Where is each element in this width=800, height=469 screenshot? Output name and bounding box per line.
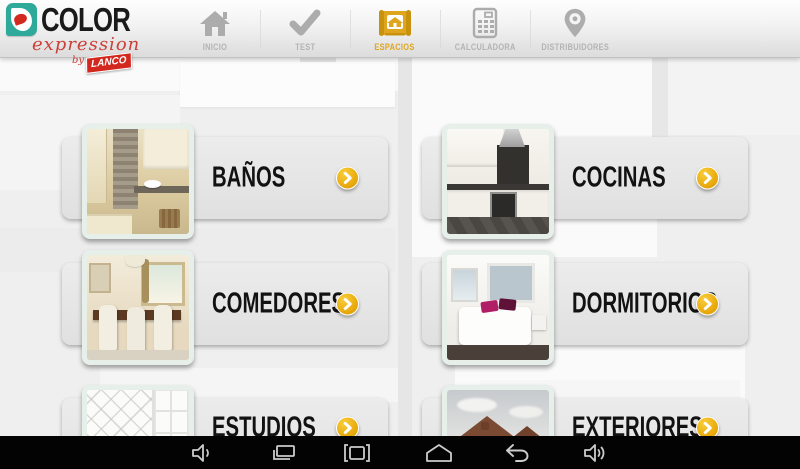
chevron-right-icon[interactable] (696, 293, 719, 316)
chair (154, 305, 172, 350)
checkmark-icon (289, 7, 321, 39)
tub-edge (87, 214, 132, 234)
volume-up-icon[interactable] (576, 436, 616, 469)
drapes (142, 259, 149, 303)
nav-label: TEST (295, 42, 315, 52)
attic-vent (481, 422, 489, 430)
brand-tagline: expression (32, 34, 140, 55)
color-expression-logo-icon (6, 3, 37, 36)
volume-down-icon[interactable] (183, 436, 223, 469)
brand-name: COLOR (41, 3, 130, 36)
tile-dormitorios[interactable]: DORMITORIOS (422, 263, 748, 345)
brand-by: by (72, 55, 84, 66)
map-pin-icon (561, 7, 589, 39)
tile-title: COCINAS (572, 162, 666, 195)
shower-glass (87, 129, 107, 203)
carpet-floor (447, 345, 549, 360)
app-logo: COLOR expression by LANCO (6, 3, 156, 36)
bedroom-photo (442, 250, 554, 365)
nav-item-calculadora[interactable]: CALCULADORA (440, 0, 530, 57)
chevron-right-icon[interactable] (696, 167, 719, 190)
tile-floor (447, 217, 549, 234)
nav-item-test[interactable]: TEST (260, 0, 350, 57)
home-icon (199, 7, 231, 39)
cloud (457, 398, 497, 412)
tile-title: COMEDORES (212, 288, 345, 321)
cloud (509, 406, 543, 418)
counter (134, 186, 189, 193)
pillow-dark (498, 298, 516, 311)
nav-item-espacios[interactable]: ESPACIOS (350, 0, 440, 57)
tile-title: BAÑOS (212, 162, 285, 195)
recent-apps-icon[interactable] (263, 436, 303, 469)
pillow-magenta (480, 300, 498, 313)
dining-room-photo (82, 250, 194, 365)
nightstand (532, 315, 546, 330)
android-system-bar (0, 436, 800, 469)
app-screen: { "branding": { "name": "COLOR", "taglin… (0, 0, 800, 469)
nav-label: CALCULADORA (454, 42, 515, 52)
mirror-cabinet (143, 129, 189, 169)
chair (127, 307, 145, 354)
high-window (487, 263, 535, 303)
tile-cocinas[interactable]: COCINAS (422, 137, 748, 219)
tile-banos[interactable]: BAÑOS (62, 137, 388, 219)
oven (490, 192, 517, 219)
blueprint-house-icon (377, 7, 413, 39)
chevron-right-icon[interactable] (336, 293, 359, 316)
kitchen-photo (442, 124, 554, 239)
nav-item-distribuidores[interactable]: DISTRIBUIDORES (530, 0, 620, 57)
window (451, 268, 478, 302)
mosaic-wall (113, 129, 138, 209)
bathroom-photo (82, 124, 194, 239)
back-icon[interactable] (497, 436, 537, 469)
bed (459, 307, 531, 345)
backsplash (497, 145, 529, 187)
lanco-logo: LANCO (86, 52, 132, 74)
nav-label: ESPACIOS (375, 42, 415, 52)
chandelier (125, 255, 145, 267)
nav-item-inicio[interactable]: INICIO (170, 0, 260, 57)
top-navigation: INICIO TEST (170, 0, 620, 57)
screenshot-icon[interactable] (337, 436, 377, 469)
wicker-basket (159, 209, 180, 228)
home-icon[interactable] (419, 436, 459, 469)
chevron-right-icon[interactable] (336, 167, 359, 190)
nav-label: DISTRIBUIDORES (541, 42, 609, 52)
tile-comedores[interactable]: COMEDORES (62, 263, 388, 345)
floor (87, 350, 189, 360)
calculator-icon (470, 7, 500, 39)
chair (99, 305, 117, 350)
basin (144, 180, 161, 188)
mirror (89, 263, 111, 293)
nav-label: INICIO (203, 42, 228, 52)
